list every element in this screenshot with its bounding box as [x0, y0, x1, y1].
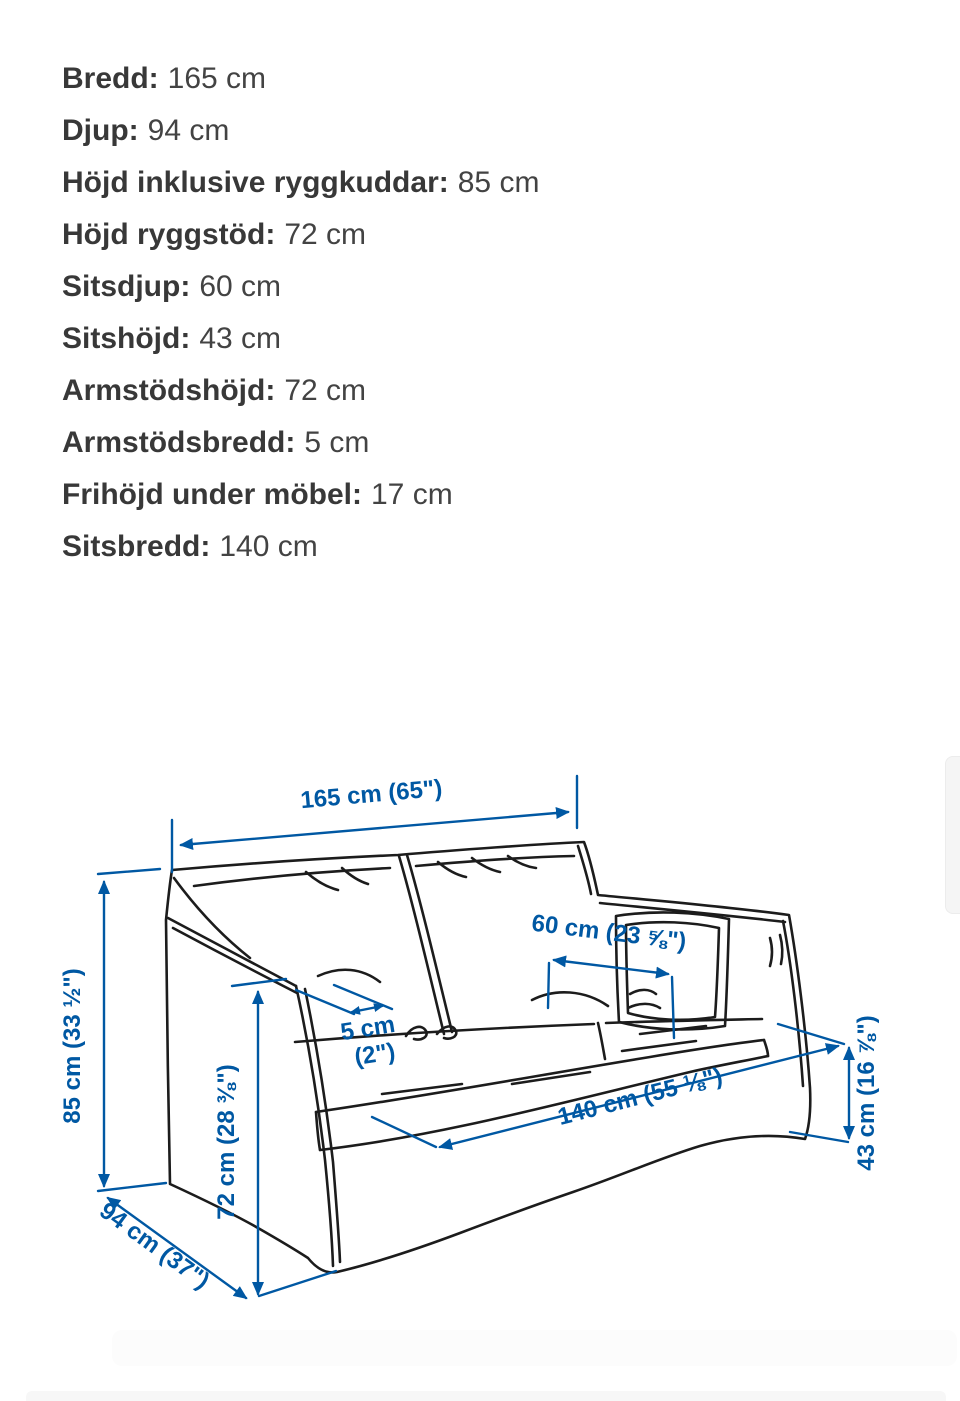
sofa-sketch — [166, 842, 810, 1272]
dim-height-label: 85 cm (33 ½") — [59, 968, 86, 1123]
dim-leader — [259, 1271, 336, 1296]
dim-height-85: 85 cm (33 ½") — [59, 869, 166, 1191]
dim-line — [181, 812, 568, 845]
product-measurements-view: Bredd:165 cm Djup:94 cm Höjd inklusive r… — [0, 0, 960, 1401]
dim-depth-label: 94 cm (37") — [94, 1197, 214, 1295]
dim-seat-height-label: 43 cm (16 ⅞") — [853, 1015, 880, 1170]
thumbnail-strip-hint — [112, 1330, 957, 1366]
dim-tick — [98, 869, 160, 874]
dim-width-label: 165 cm (65") — [299, 775, 443, 814]
dim-guide — [548, 963, 549, 1008]
dim-back-height-label: 72 cm (28 ⅜") — [213, 1064, 240, 1219]
carousel-next-peek[interactable] — [945, 756, 960, 914]
sofa-silhouette — [166, 842, 810, 1272]
dim-tick — [98, 1183, 166, 1191]
sofa-dimension-diagram: 165 cm (65") 85 cm (33 ½") 94 cm (37") 7… — [0, 0, 960, 1401]
bottom-band — [26, 1391, 946, 1401]
